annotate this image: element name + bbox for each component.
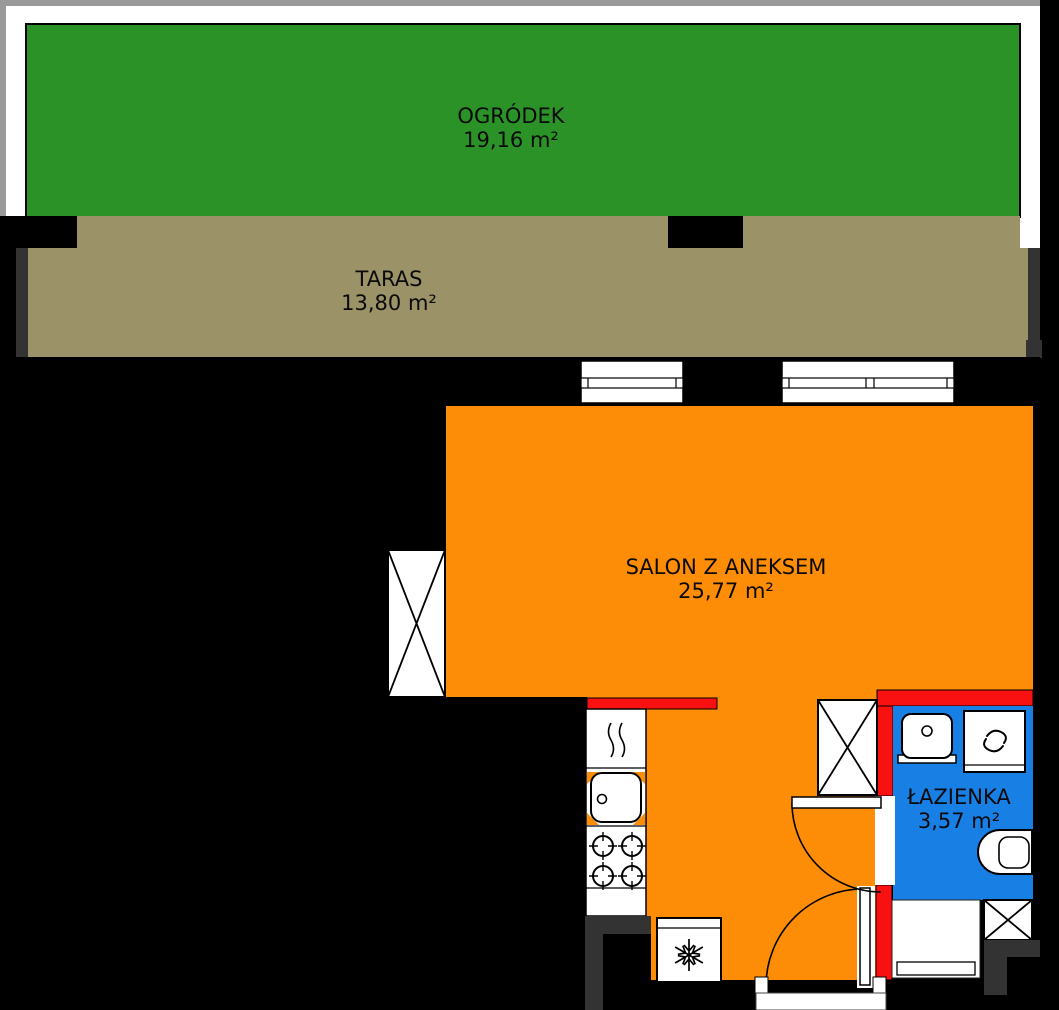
toilet-icon [978, 830, 1032, 874]
wall-entrance-red [876, 885, 892, 980]
faucet-icon [598, 795, 607, 804]
garden-label: OGRÓDEK 19,16 m² [457, 104, 564, 152]
terrace-area-value: 13,80 m² [341, 291, 437, 315]
bathroom-label: ŁAZIENKA 3,57 m² [907, 785, 1011, 833]
wall-bottom-right-inner [1007, 957, 1043, 995]
terrace-area [28, 248, 1028, 358]
wall-kitchen-top-red [587, 698, 717, 709]
floor-plan-page: OGRÓDEK 19,16 m² TARAS 13,80 m² SALON Z … [0, 0, 1059, 1010]
window-left [581, 361, 683, 403]
entrance-door-leaf [860, 888, 870, 985]
terrace-label: TARAS 13,80 m² [341, 267, 437, 315]
terrace-area-upper [77, 216, 1020, 248]
garden-name: OGRÓDEK [457, 104, 564, 128]
terrace-wall-right [1028, 248, 1040, 340]
bathroom-door-opening [875, 796, 895, 885]
bathroom-area-value: 3,57 m² [907, 809, 1011, 833]
boundary-strip-left [0, 0, 6, 216]
kitchen-sink-icon [587, 772, 645, 825]
wall-bathroom-left [877, 706, 893, 796]
wall-pier-middle [668, 216, 743, 248]
window-right [782, 361, 954, 403]
margin-left [6, 24, 26, 218]
margin-right [1020, 24, 1040, 248]
living-room-area-value: 25,77 m² [626, 579, 827, 603]
margin-top [6, 6, 1040, 24]
terrace-name: TARAS [341, 267, 437, 291]
utility-niche [892, 900, 980, 978]
boundary-strip-top [0, 0, 1040, 6]
wall-bathroom-top [877, 690, 1033, 706]
living-room-name: SALON Z ANEKSEM [626, 555, 827, 579]
faucet-icon [922, 726, 932, 736]
terrace-wall-right-corner [1026, 340, 1042, 358]
terrace-wall-left [16, 248, 28, 358]
entrance-threshold [756, 993, 886, 1010]
shaft-x-box-middle [818, 700, 877, 795]
niche-sill [897, 962, 975, 975]
fridge [657, 918, 721, 982]
wall-kitchen-top-black [420, 697, 587, 709]
washing-machine-icon [964, 711, 1025, 772]
bathroom-door-leaf [792, 797, 881, 808]
wall-below-kitchen-inner [603, 934, 651, 1010]
bathroom-name: ŁAZIENKA [907, 785, 1011, 809]
washbasin-icon [898, 714, 956, 763]
garden-area-value: 19,16 m² [457, 128, 564, 152]
shaft-x-box-bottom-right [984, 900, 1032, 940]
shaft-x-box-left [388, 550, 445, 697]
living-room-label: SALON Z ANEKSEM 25,77 m² [626, 555, 827, 603]
living-area-main [446, 406, 1033, 690]
wall-pier-left [0, 216, 77, 248]
kitchen-counter [586, 709, 646, 916]
